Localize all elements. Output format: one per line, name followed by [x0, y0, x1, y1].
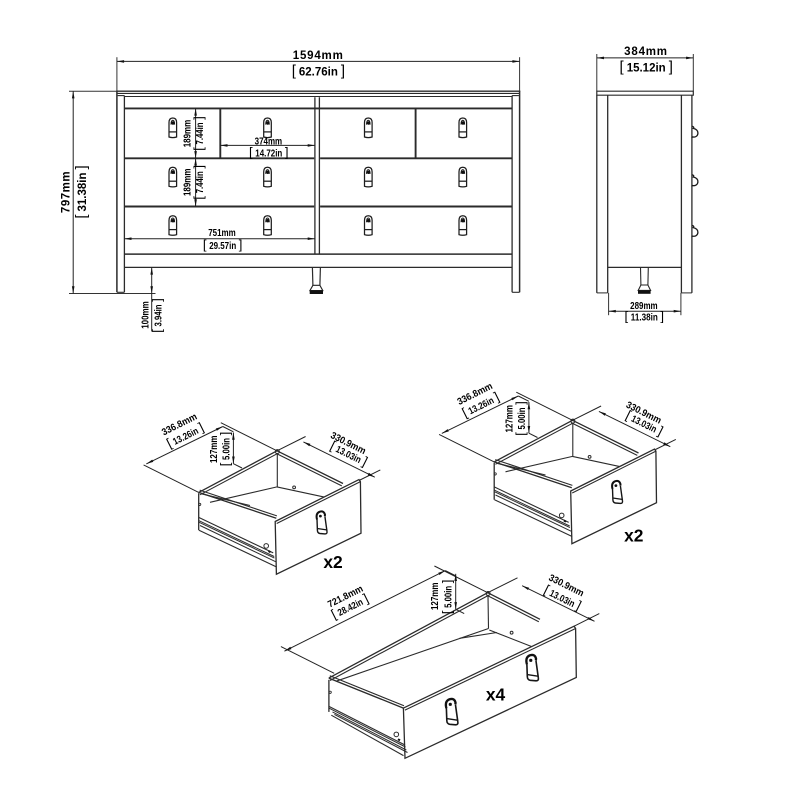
svg-text:189mm: 189mm — [183, 168, 194, 196]
svg-text:751mm: 751mm — [208, 228, 236, 239]
svg-text:x4: x4 — [486, 685, 506, 705]
svg-text:x2: x2 — [323, 552, 342, 572]
svg-text:1594mm: 1594mm — [293, 50, 344, 62]
svg-text:289mm: 289mm — [630, 301, 658, 312]
svg-text:127mm: 127mm — [504, 405, 515, 433]
svg-text:189mm: 189mm — [183, 119, 194, 147]
svg-text:127mm: 127mm — [209, 435, 220, 463]
svg-text:x2: x2 — [624, 525, 643, 545]
svg-text:384mm: 384mm — [624, 46, 668, 58]
svg-text:374mm: 374mm — [255, 136, 283, 147]
svg-text:797mm: 797mm — [61, 171, 73, 213]
